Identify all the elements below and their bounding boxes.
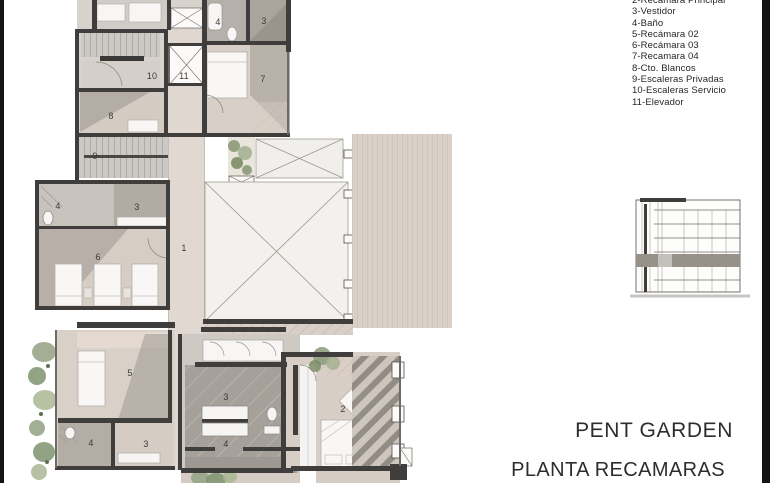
presentation-slide: 4310117894316532434 2-Recámara Principal… xyxy=(0,0,770,483)
left-edge-bar xyxy=(0,0,4,483)
highlighted-floor-band xyxy=(636,254,740,267)
elevator-shaft xyxy=(169,45,204,85)
building-section-key xyxy=(628,190,752,302)
legend-item: 6-Recámara 03 xyxy=(632,40,726,51)
right-edge-bar xyxy=(762,0,770,483)
legend-item: 7-Recamara 04 xyxy=(632,51,726,62)
legend-item: 8-Cto. Blancos xyxy=(632,63,726,74)
legend: 2-Recámara Principal3-Vestidor4-Baño5-Re… xyxy=(632,0,726,108)
legend-item: 10-Escaleras Servicio xyxy=(632,85,726,96)
private-stairs xyxy=(79,137,180,178)
floor-plan-drawing xyxy=(0,0,520,483)
legend-item: 9-Escaleras Privadas xyxy=(632,74,726,85)
legend-item: 3-Vestidor xyxy=(632,6,726,17)
project-title: PENT GARDEN xyxy=(575,419,733,443)
legend-item: 11-Elevador xyxy=(632,97,726,108)
unit-recamara-principal xyxy=(286,347,412,483)
service-stairs xyxy=(81,33,160,57)
legend-item: 5-Recámara 02 xyxy=(632,29,726,40)
plan-title: PLANTA RECAMARAS xyxy=(511,459,725,482)
terrace-void xyxy=(203,137,353,335)
legend-item: 4-Baño xyxy=(632,18,726,29)
unit-recamara-03 xyxy=(37,184,170,306)
floor-plan: 4310117894316532434 xyxy=(0,0,520,483)
terrace-deck xyxy=(352,134,452,328)
